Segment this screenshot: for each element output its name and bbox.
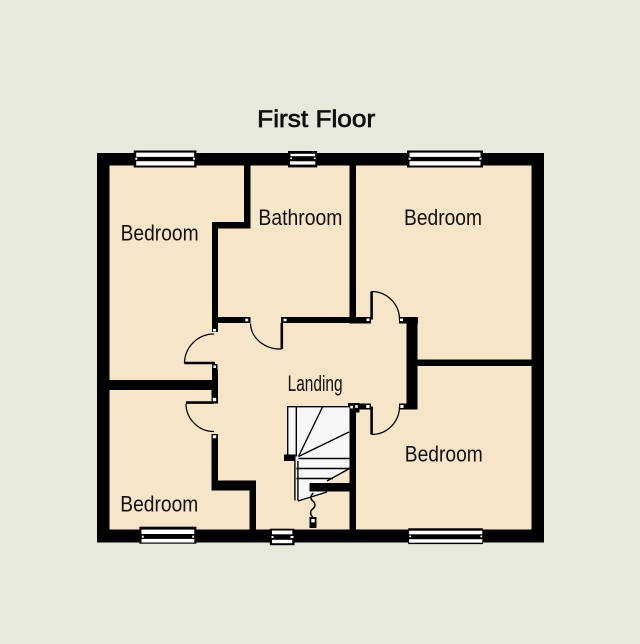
svg-text:Landing: Landing	[288, 371, 343, 396]
svg-text:Bathroom: Bathroom	[258, 205, 342, 230]
svg-text:Bedroom: Bedroom	[120, 492, 198, 517]
svg-text:First Floor: First Floor	[257, 106, 375, 133]
svg-text:Bedroom: Bedroom	[121, 221, 199, 246]
svg-text:Bedroom: Bedroom	[405, 442, 483, 467]
svg-text:Bedroom: Bedroom	[404, 205, 482, 230]
